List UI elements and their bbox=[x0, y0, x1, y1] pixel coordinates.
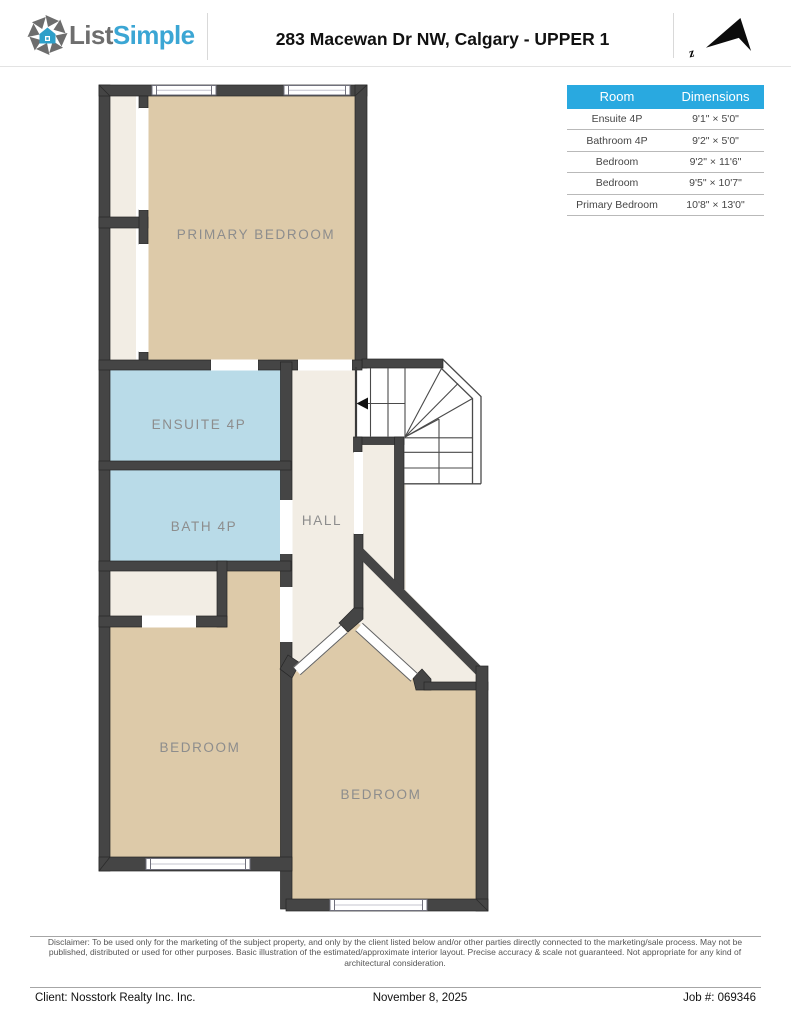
svg-text:BEDROOM: BEDROOM bbox=[341, 787, 422, 802]
svg-text:BEDROOM: BEDROOM bbox=[160, 740, 241, 755]
svg-text:BATH 4P: BATH 4P bbox=[171, 519, 237, 534]
svg-text:PRIMARY BEDROOM: PRIMARY BEDROOM bbox=[177, 227, 336, 242]
svg-text:ENSUITE 4P: ENSUITE 4P bbox=[152, 417, 247, 432]
svg-text:HALL: HALL bbox=[302, 513, 342, 528]
